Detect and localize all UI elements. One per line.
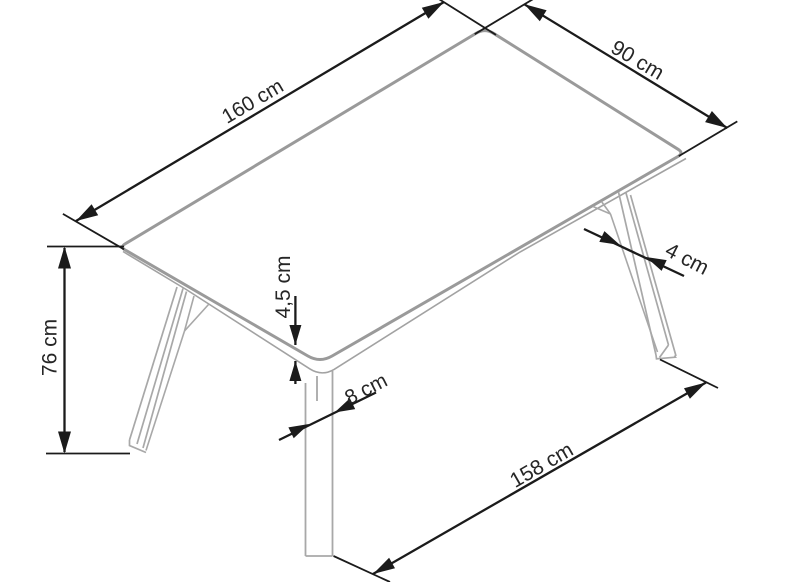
svg-text:8 cm: 8 cm: [341, 369, 391, 410]
svg-text:90 cm: 90 cm: [607, 36, 668, 85]
svg-text:4,5 cm: 4,5 cm: [272, 255, 295, 318]
svg-text:4 cm: 4 cm: [661, 239, 712, 280]
svg-text:158 cm: 158 cm: [506, 438, 577, 492]
svg-text:76 cm: 76 cm: [39, 319, 62, 376]
